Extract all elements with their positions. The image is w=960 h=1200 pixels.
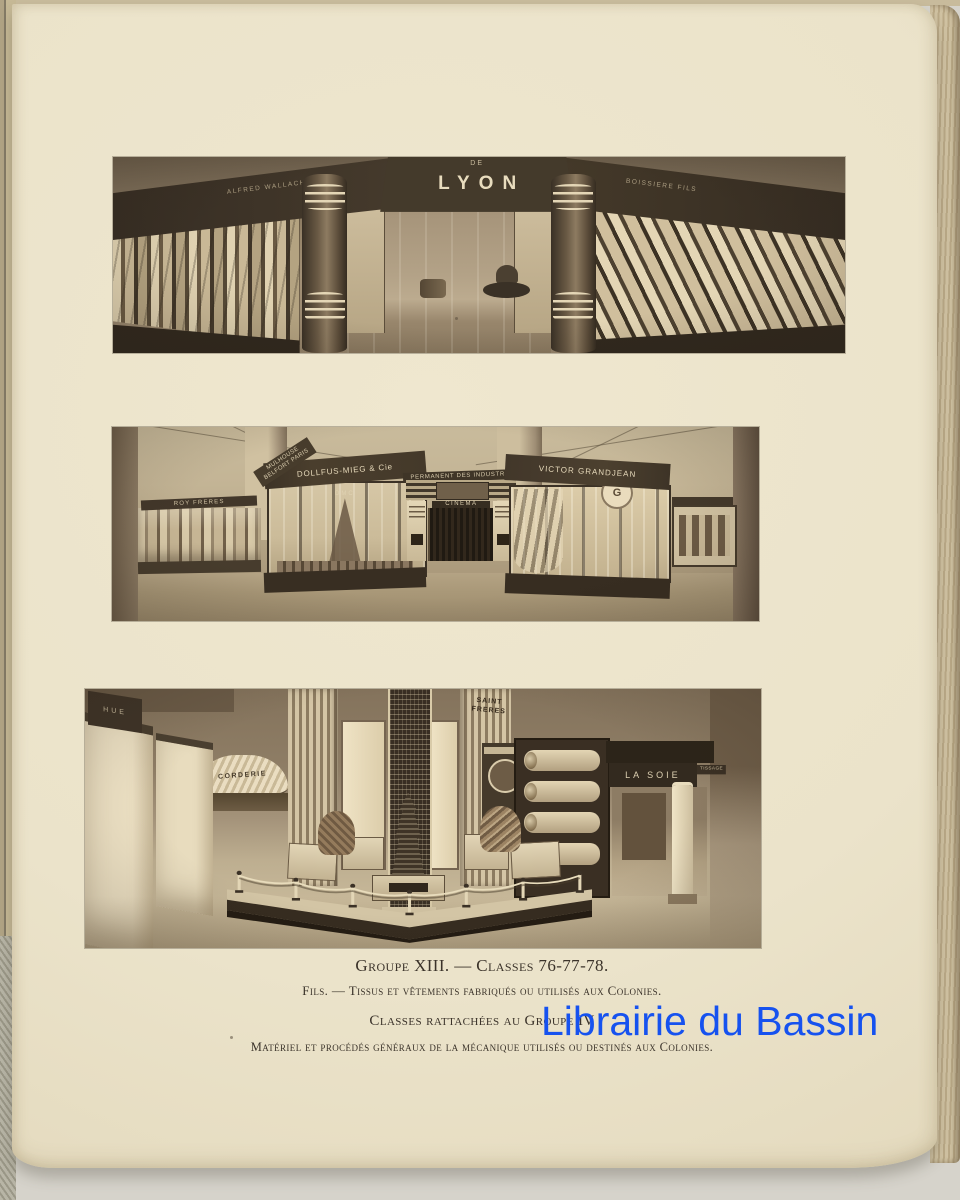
photo-textile-hall: CORDERIE SAINT FRERES LA SOIE TISSAGE xyxy=(85,689,761,948)
rope-barrier xyxy=(227,860,592,943)
caption-groupe-xiii: Groupe XIII. — Classes 76-77-78. xyxy=(97,956,867,976)
striped-pylon-right xyxy=(551,174,596,353)
sign-la-soie-label: LA SOIE xyxy=(625,770,681,780)
cinema-doorway-curtain xyxy=(428,508,500,560)
cinema-poster xyxy=(411,534,423,545)
draped-mannequin-right xyxy=(480,806,521,853)
corridor-doorway xyxy=(622,793,666,860)
sign-hue-label: HUE xyxy=(104,707,128,718)
striped-pylon-left xyxy=(302,174,347,353)
sign-victor-grandjean-label: VICTOR GRANDJEAN xyxy=(539,464,637,479)
fabric-drape xyxy=(514,489,563,572)
dust-speck xyxy=(455,317,458,320)
plant xyxy=(496,265,518,285)
sign-lyon: LYON xyxy=(380,173,574,195)
sign-la-soie: LA SOIE xyxy=(609,763,697,788)
book-page: DE LYON ALFRED WALLACH BOISSIERE FILS RO… xyxy=(12,4,937,1168)
sign-dollfus-mieg-label: DOLLFUS-MIEG & Cie xyxy=(297,462,394,479)
roy-freres-drapes xyxy=(138,508,261,562)
kiosk-base xyxy=(264,567,426,593)
glass-case-far xyxy=(156,733,213,916)
sign-dmc: DMC xyxy=(309,491,380,497)
caption-fils-tissus: Fils. — Tissus et vêtements fabriqués ou… xyxy=(97,983,867,999)
sign-corderie: CORDERIE xyxy=(217,771,266,781)
sign-tissage: TISSAGE xyxy=(697,765,726,774)
white-column xyxy=(672,785,694,899)
la-soie-header xyxy=(606,741,714,763)
far-stand-sign xyxy=(672,497,733,505)
g-monogram: G xyxy=(613,487,622,499)
displayed-textiles xyxy=(679,515,731,556)
hall-wall-left xyxy=(112,427,138,621)
sign-permanent-label: PERMANENT DES INDUSTRIE xyxy=(410,471,512,481)
dollfus-mieg-kiosk: DMC DOLLFUS-MIEG & Cie xyxy=(264,452,426,605)
photo-kiosk-hall: ROY FRERES DMC DOLLFUS-MIEG & Cie MULHOU… xyxy=(112,427,759,621)
grandjean-kiosk: G VICTOR GRANDJEAN xyxy=(505,456,670,607)
far-display-case xyxy=(672,505,737,567)
sign-roy-freres-label: ROY FRERES xyxy=(174,499,225,507)
glass-door-right xyxy=(514,204,552,333)
roy-freres-base xyxy=(138,560,261,574)
fabric-roll xyxy=(524,781,601,803)
sign-cinema: CINEMA xyxy=(432,501,490,508)
fabric-roll xyxy=(524,750,601,772)
curtained-opening-right xyxy=(430,720,459,870)
sign-de: DE xyxy=(380,160,574,167)
display-barrel xyxy=(420,279,446,299)
glass-door-left xyxy=(347,204,385,333)
cinema-pillar-left xyxy=(407,501,426,561)
photo-lyon-stand: DE LYON ALFRED WALLACH BOISSIERE FILS xyxy=(113,157,845,353)
bookseller-watermark: Librairie du Bassin xyxy=(541,998,878,1045)
dust-speck xyxy=(230,1036,233,1039)
cinema-screen xyxy=(436,482,490,500)
sign-cinema-label: CINEMA xyxy=(445,501,477,507)
fabric-roll xyxy=(524,812,601,834)
draped-mannequin-left xyxy=(318,811,355,855)
